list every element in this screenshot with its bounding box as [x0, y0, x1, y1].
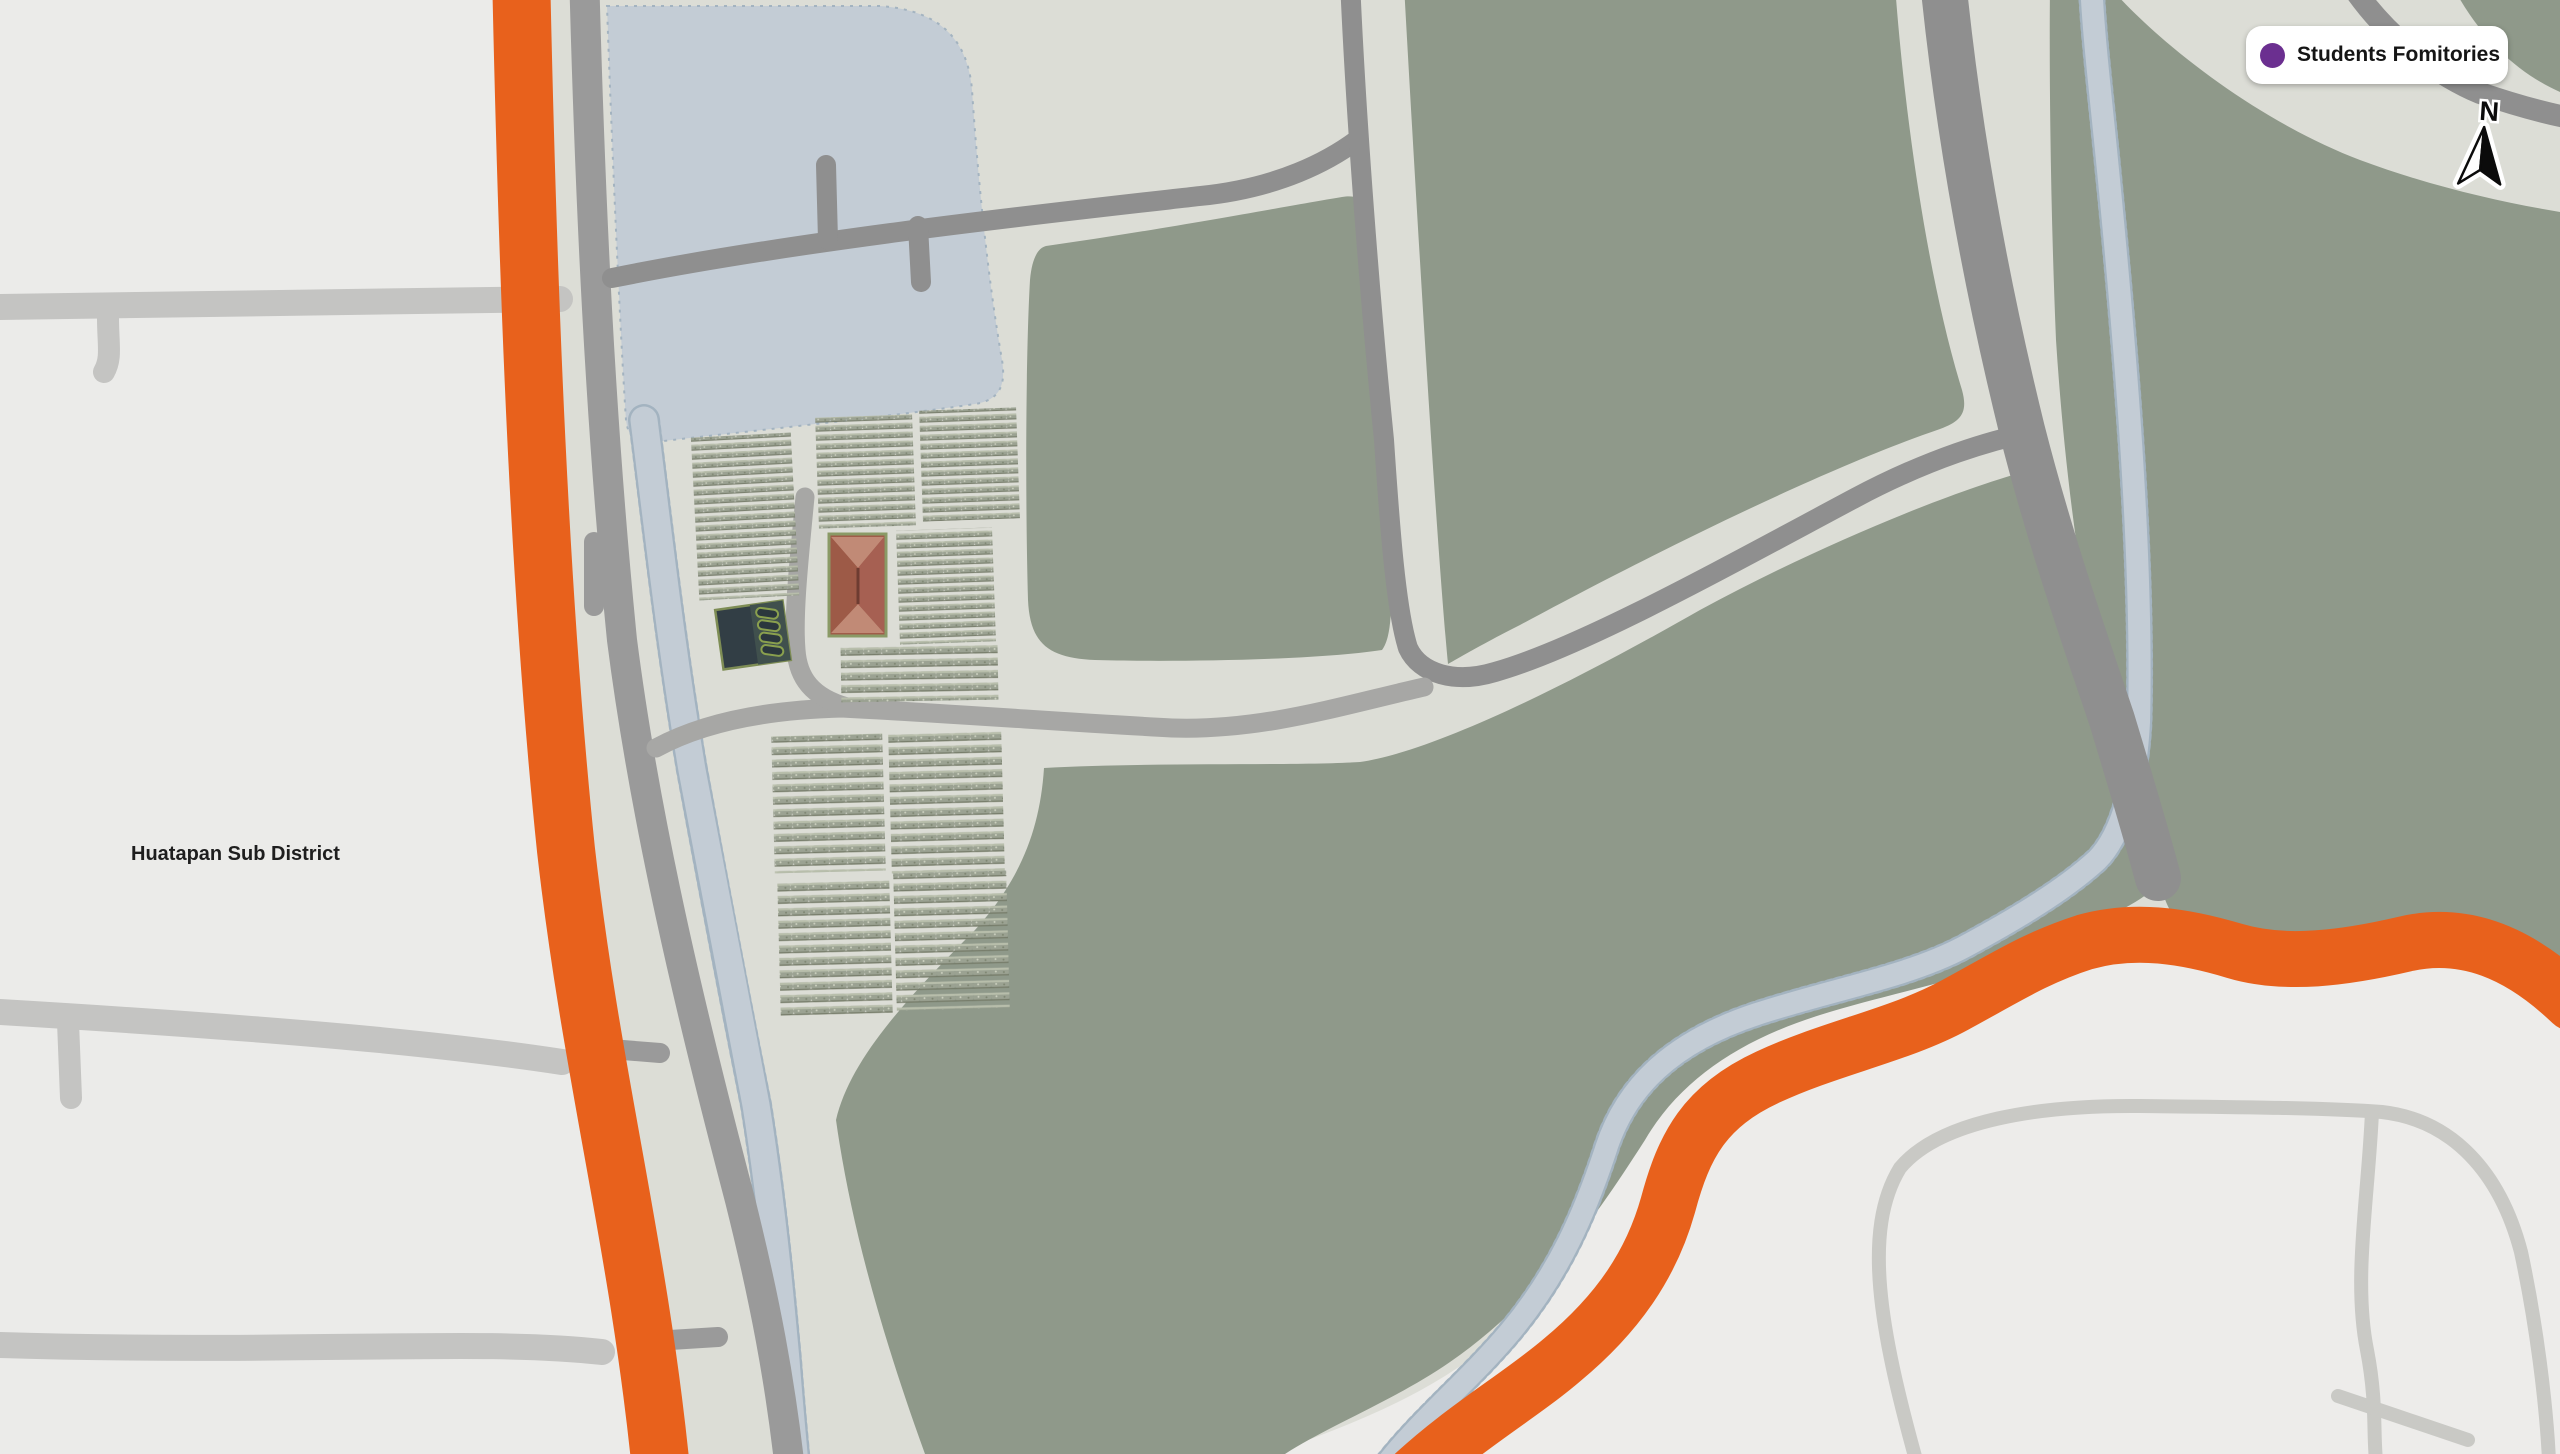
- compass-n-label: N: [2478, 96, 2500, 127]
- legend[interactable]: Students Fomitories: [2246, 26, 2508, 84]
- row-block-lower-b: [888, 731, 1005, 874]
- district-label: Huatapan Sub District: [131, 843, 340, 865]
- row-block-lower-a: [771, 734, 886, 874]
- map-screenshot: Huatapan Sub District N Students Fomitor…: [0, 0, 2560, 1454]
- road-west-south: [0, 1345, 602, 1352]
- field-upper-middle: [1026, 196, 1391, 660]
- row-block-northeast: [919, 407, 1020, 521]
- road-west-middle-stub: [68, 1022, 71, 1098]
- legend-dot-icon: [2260, 43, 2285, 68]
- road-west-north-stub: [104, 318, 109, 372]
- row-block-lower-c: [777, 879, 893, 1019]
- row-block-south-of-hall: [841, 644, 999, 703]
- road-west-north: [0, 299, 560, 307]
- road-pond-stub-north: [826, 165, 828, 240]
- red-roof-hall: [829, 534, 886, 636]
- row-block-lower-d: [893, 871, 1010, 1011]
- dark-panel-building: [715, 601, 791, 670]
- road-pond-stub-south: [918, 226, 921, 282]
- row-block-northwest: [691, 432, 799, 600]
- row-block-north-middle: [815, 414, 916, 528]
- row-block-east-of-hall: [896, 527, 996, 644]
- map-canvas[interactable]: Huatapan Sub District N: [0, 0, 2560, 1454]
- legend-item-label: Students Fomitories: [2297, 43, 2500, 67]
